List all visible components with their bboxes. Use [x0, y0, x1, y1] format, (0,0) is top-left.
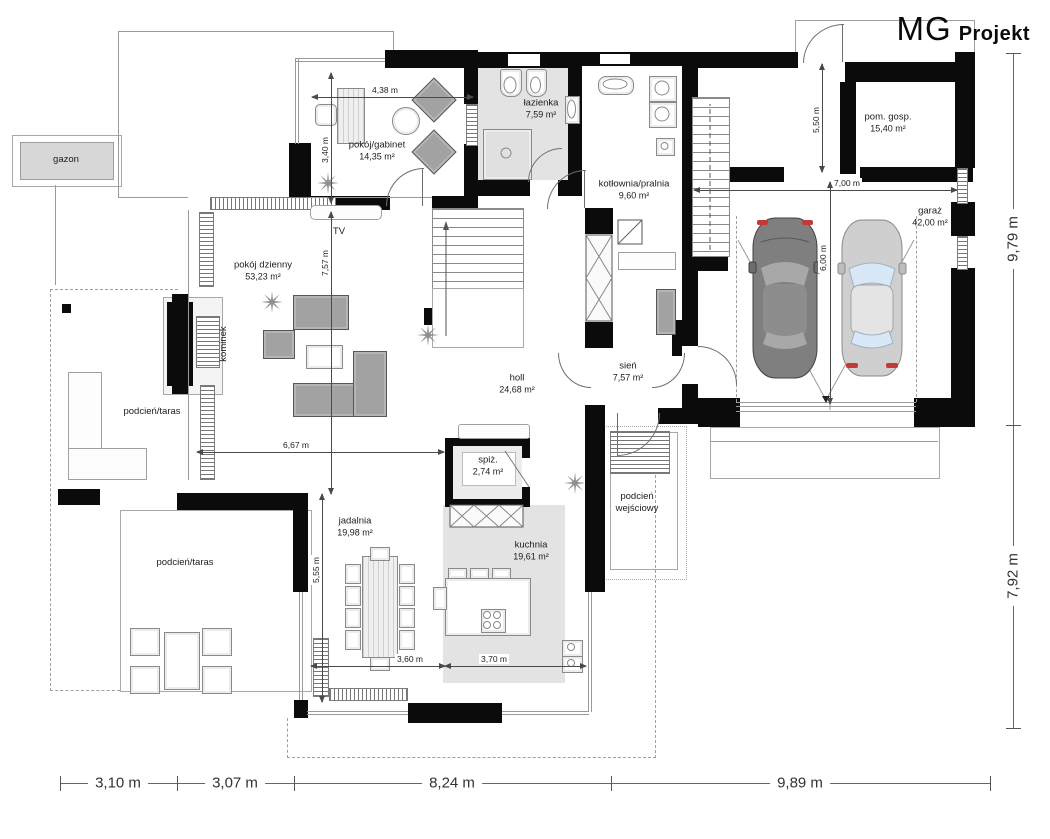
floor-plan-page: pokój/gabinet14,35 m²łazienka7,59 m²kotł…	[0, 0, 1050, 839]
car-light	[838, 220, 906, 376]
fixture-details	[484, 77, 670, 667]
brand-logo-projekt: Projekt	[959, 23, 1030, 46]
brand-logo: MG Projekt	[897, 10, 1030, 48]
stair-arrow	[443, 104, 710, 336]
plant-icon	[261, 172, 586, 494]
car-dark	[749, 218, 821, 378]
brand-logo-mg: MG	[897, 10, 952, 48]
plan-overlay	[0, 0, 1050, 839]
floor-plan	[0, 0, 1050, 839]
vent-duct	[450, 220, 642, 527]
